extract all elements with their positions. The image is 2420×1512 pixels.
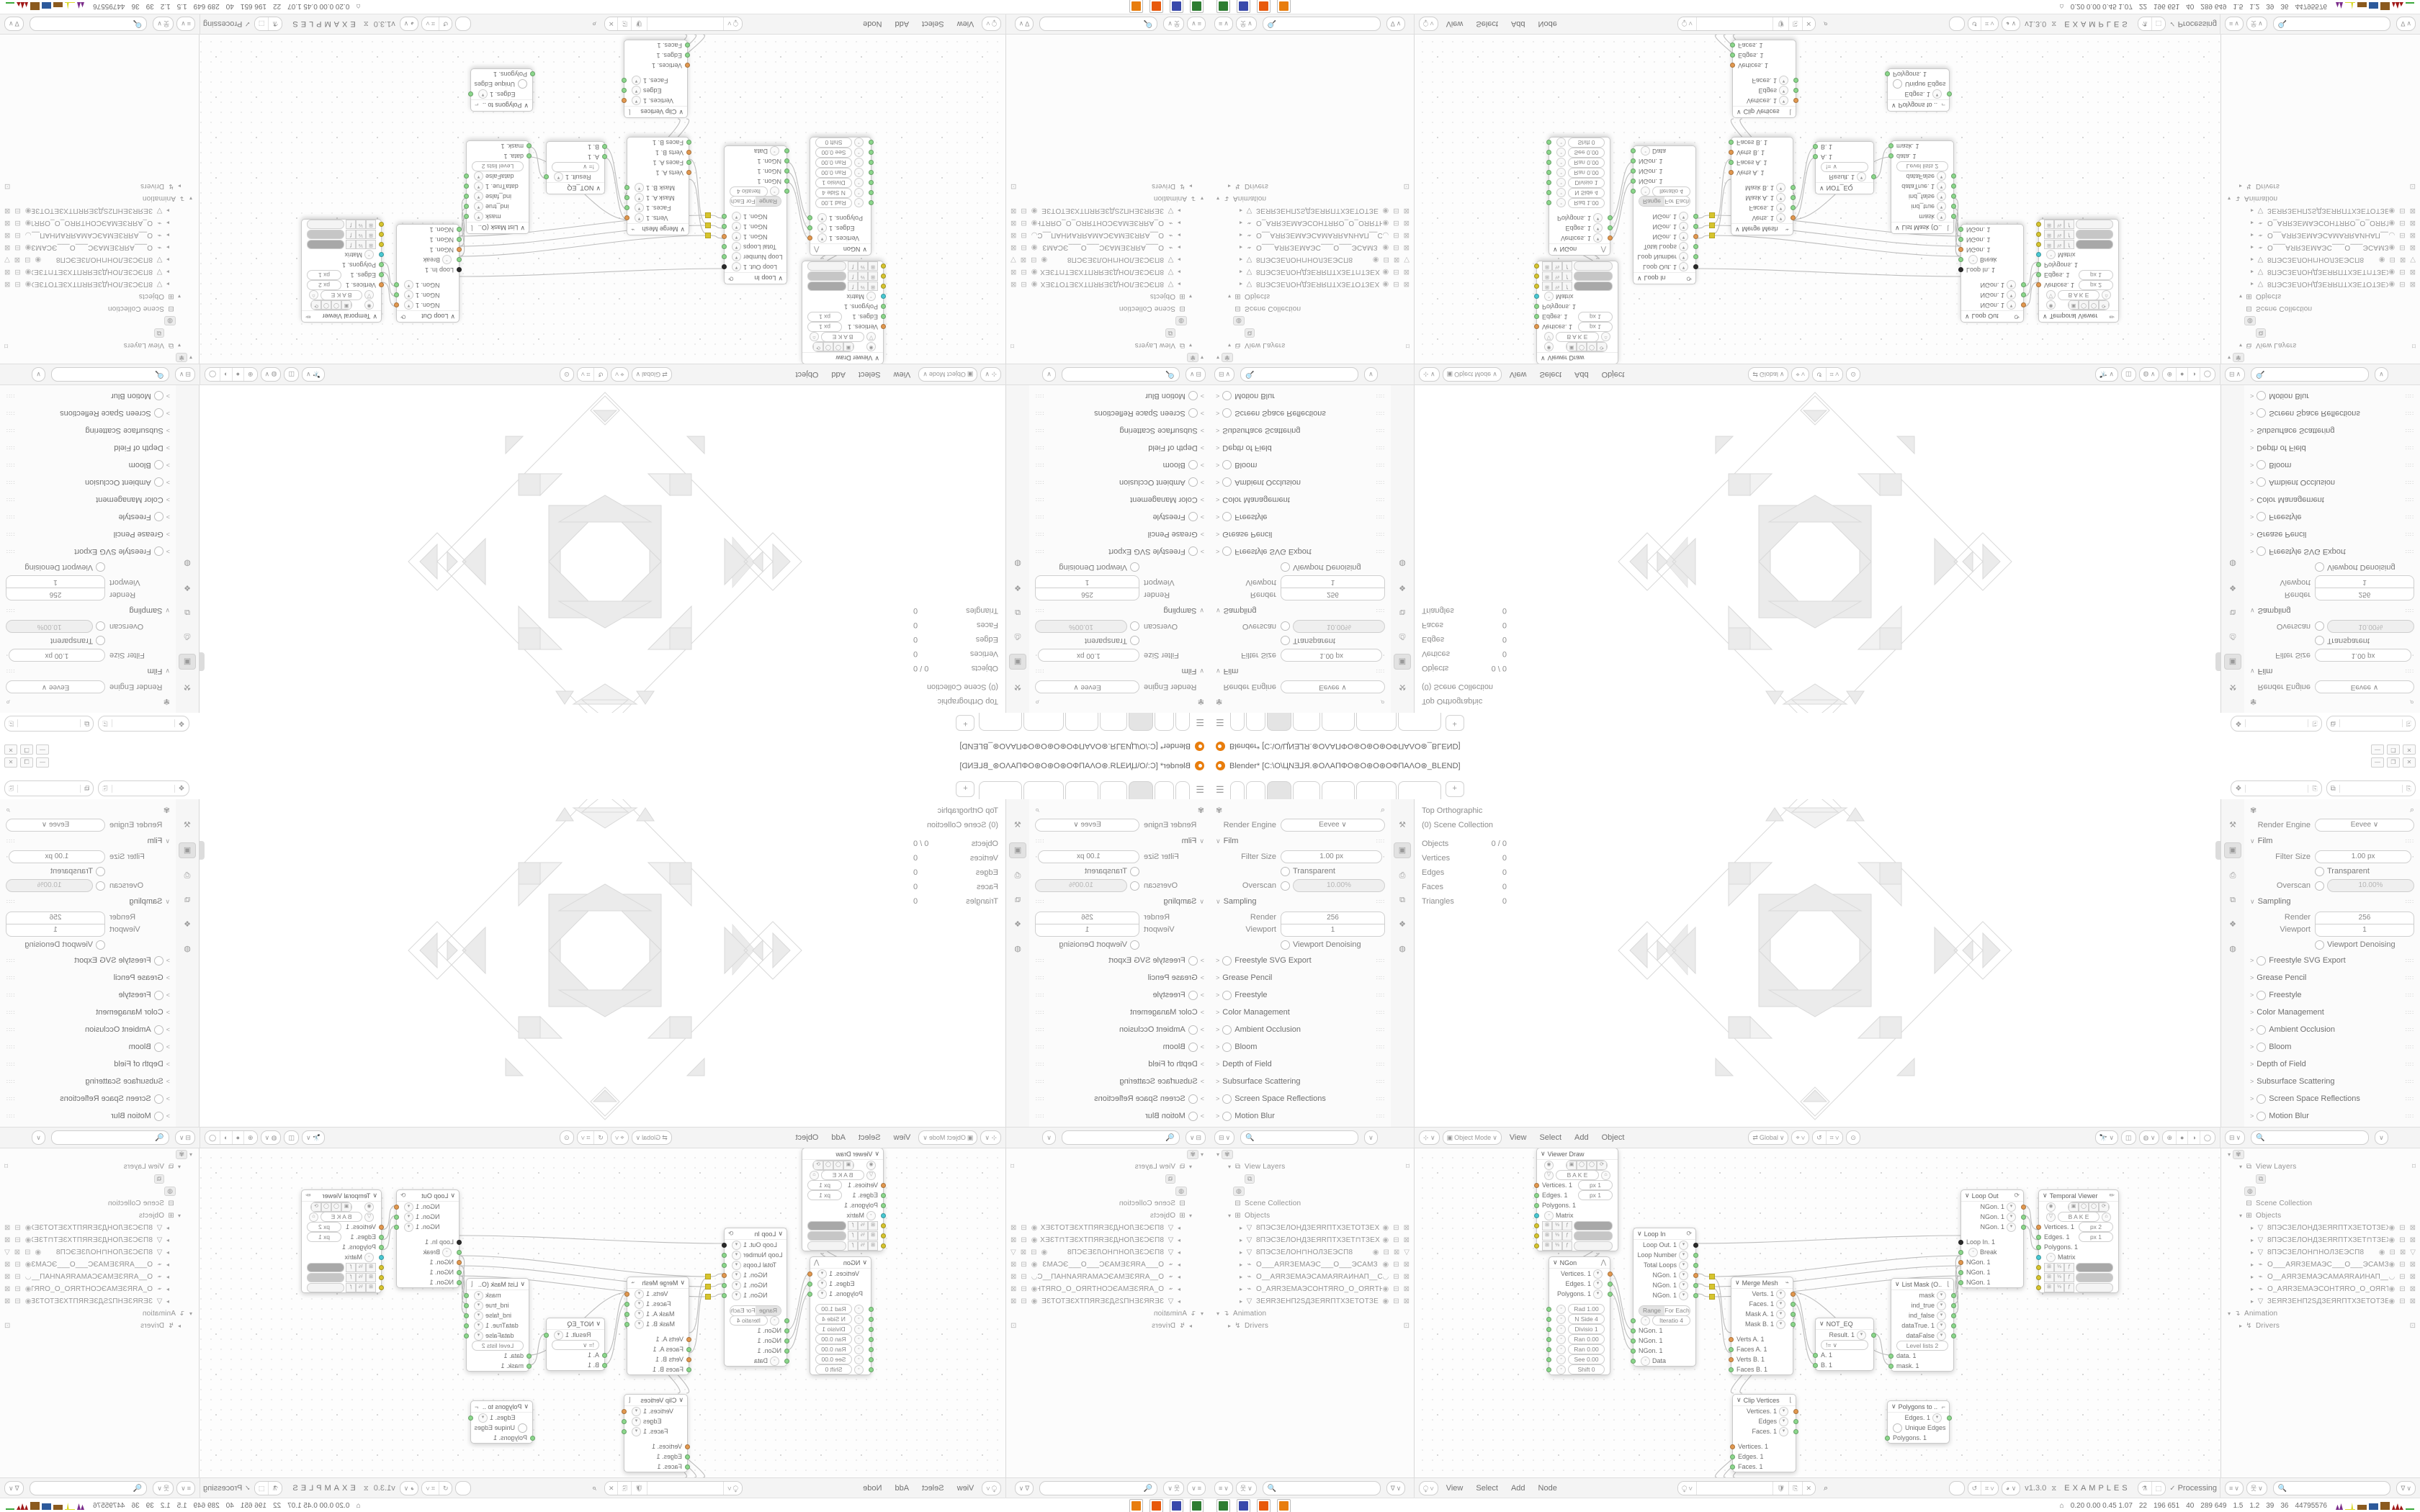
outliner-row-scene-collection[interactable]: ⊟Scene Collection xyxy=(0,302,199,315)
screen-space-reflections-row[interactable]: >Screen Space Reflections∷∷ xyxy=(1035,1090,1204,1107)
socket-green[interactable] xyxy=(464,1313,469,1318)
outliner-row-scene-collection[interactable]: ⊟Scene Collection xyxy=(0,1197,199,1210)
collapse-socket-chip[interactable]: ▾ xyxy=(1857,173,1866,182)
render-samples-field[interactable]: 256 xyxy=(1281,912,1385,924)
bake-button[interactable]: B A K E xyxy=(321,1212,362,1222)
node-polygons-to-edges[interactable]: ∨Polygons to ..⌐Edges. 1▾Unique EdgesPol… xyxy=(470,68,533,112)
editor-type-dropdown[interactable]: ⊹ ∨ xyxy=(980,367,1001,382)
swatch-btn-1[interactable]: ⅓ xyxy=(2054,240,2064,250)
swatch-btn-1[interactable]: ⅓ xyxy=(356,220,366,230)
socket-green[interactable] xyxy=(1546,150,1551,156)
matrix-icon[interactable]: ⌂ xyxy=(309,1212,318,1222)
value-field[interactable]: N Side 4 xyxy=(1568,188,1605,198)
workspace-tab[interactable] xyxy=(1322,781,1355,799)
properties-display-dropdown[interactable]: ⊟ ∨ xyxy=(175,367,195,382)
section-chevron-icon[interactable]: > xyxy=(166,410,170,417)
expand-arrow-icon[interactable]: ▸ xyxy=(1237,1237,1245,1243)
outliner-row--r-r-r-[interactable]: ▸⌁О_АЯRЗЕМАЭСОНТЯRО_О_ОЯRТН◉⊟⊠ xyxy=(0,217,199,229)
swatch-btn-1[interactable]: ⅓ xyxy=(858,1241,868,1251)
mesh-icon[interactable]: ▽ xyxy=(2046,291,2056,300)
socket-green[interactable] xyxy=(1730,1454,1735,1459)
shading-mode-2-button[interactable]: ◑ xyxy=(220,1131,231,1144)
render-samples-field[interactable]: 256 xyxy=(1035,588,1139,601)
checkbox-icon[interactable] xyxy=(1893,80,1902,89)
expand-arrow-icon[interactable]: ▾ xyxy=(1226,1164,1233,1170)
freestyle-svg-export-row[interactable]: >Freestyle SVG Export∷∷ xyxy=(6,952,170,969)
node-title[interactable]: ∨List Mask (O..⌊ xyxy=(1891,222,1953,233)
outliner-row-objects[interactable]: ▾⊞Objects xyxy=(2221,290,2420,302)
foreach-option[interactable]: For Each xyxy=(1664,1306,1690,1315)
socket-green[interactable] xyxy=(1534,315,1539,320)
collapse-socket-chip[interactable]: ▾ xyxy=(474,172,483,181)
foreach-option[interactable]: For Each xyxy=(730,197,756,207)
section-chevron-icon[interactable]: > xyxy=(166,974,170,981)
screen-space-reflections-row[interactable]: >Screen Space Reflections∷∷ xyxy=(1216,1090,1385,1107)
checkbox-icon[interactable] xyxy=(96,636,105,646)
node-loop-out[interactable]: ∨Loop Out⟳NGon. 1▾NGon. 1▾NGon. 1▾Loop I… xyxy=(396,224,460,323)
checkbox-icon[interactable] xyxy=(1188,1025,1198,1035)
motion-blur-row[interactable]: >Motion Blur∷∷ xyxy=(6,387,170,405)
visibility-dropdown[interactable]: 🔭 ∨ xyxy=(2095,1130,2118,1145)
collapse-socket-chip[interactable]: ▾ xyxy=(1779,1427,1788,1436)
node-viewer-draw-a[interactable]: ∨Viewer Draw◉▣◯◯⟳▽B A K E⌂Vertices. 1px … xyxy=(1536,261,1618,364)
menu-add[interactable]: Add xyxy=(895,1484,909,1493)
option-chip[interactable]: ◦ xyxy=(1556,1325,1566,1334)
maximize-button[interactable]: ❐ xyxy=(2387,757,2400,768)
checkbox-icon[interactable] xyxy=(154,1112,163,1121)
viewport-3d[interactable]: Top Orthographic (0) Scene Collection Ob… xyxy=(200,799,1005,1127)
outliner-row-drivers[interactable]: ▸↯Drivers⊡ xyxy=(1006,180,1210,192)
grease-pencil-row[interactable]: >Grease Pencil∷∷ xyxy=(1216,969,1385,986)
shading-mode-0-button[interactable]: ⊕ xyxy=(2163,368,2177,381)
viewlayer-icon[interactable]: ⧉ xyxy=(80,785,93,793)
menu-view[interactable]: View xyxy=(894,1133,911,1142)
eye-icon[interactable]: ◉ xyxy=(25,1297,32,1305)
menu-object[interactable]: Object xyxy=(1602,370,1625,379)
eye-icon[interactable]: ◉ xyxy=(1382,243,1389,251)
option-chip[interactable]: ◦ xyxy=(1556,1355,1566,1364)
option-chip[interactable]: ◦ xyxy=(364,251,374,260)
section-chevron-icon[interactable]: > xyxy=(166,462,170,469)
foreach-option[interactable]: For Each xyxy=(730,1306,756,1315)
section-chevron-icon[interactable]: > xyxy=(2250,410,2254,417)
properties-search-input[interactable]: 🔍 xyxy=(51,1130,169,1145)
expand-arrow-icon[interactable]: ▸ xyxy=(164,244,171,251)
option-chip[interactable]: ◦ xyxy=(1556,148,1566,158)
outliner-row[interactable]: ▾✾ xyxy=(2221,351,2420,364)
expand-arrow-icon[interactable]: ▸ xyxy=(164,269,171,275)
value-field[interactable]: See 0.00 xyxy=(815,1354,852,1364)
expand-arrow-icon[interactable]: ▾ xyxy=(176,1164,183,1170)
socket-green[interactable] xyxy=(1608,1292,1613,1297)
checkbox-icon[interactable] xyxy=(1130,881,1139,891)
color-swatch[interactable] xyxy=(1574,282,1613,292)
expand-arrow-icon[interactable]: ▾ xyxy=(2237,293,2244,300)
shading-sphere-dropdown[interactable]: ◕ ∨ xyxy=(400,1481,419,1495)
socket-green[interactable] xyxy=(722,255,727,260)
socket-orange[interactable] xyxy=(807,1272,812,1277)
outliner-display-dropdown[interactable]: ≡ ∨ xyxy=(2225,17,2244,31)
socket-orange[interactable] xyxy=(1729,171,1734,176)
screen-space-reflections-row[interactable]: >Screen Space Reflections∷∷ xyxy=(2250,1090,2414,1107)
node-title[interactable]: ∨NOT_EQ xyxy=(1816,1318,1873,1330)
swatch-btn-0[interactable]: ⊞ xyxy=(366,240,376,250)
eye-icon[interactable]: ◉ xyxy=(2388,1261,2395,1269)
socket-orange[interactable] xyxy=(457,1260,462,1265)
expand-arrow-icon[interactable]: ▾ xyxy=(2226,1310,2233,1317)
node-tree-selector[interactable]: ⧬ ∨ 🛡 ⎘ ✕ xyxy=(604,1481,743,1495)
px-field[interactable]: px 2 xyxy=(2079,280,2113,290)
grease-pencil-row[interactable]: >Grease Pencil∷∷ xyxy=(1035,969,1204,986)
checkbox-icon[interactable] xyxy=(96,622,105,631)
node-clip-vertices[interactable]: ∨Clip Vertices⌊Vertices. 1▾Edges▾Faces. … xyxy=(624,40,688,118)
workspace-tab[interactable] xyxy=(1293,713,1320,731)
level-lists-field[interactable]: Level lists 2 xyxy=(472,1341,524,1351)
render-disable-icon[interactable]: ⊠ xyxy=(4,1297,10,1305)
mode-dropdown[interactable]: ▣ Object Mode ∨ xyxy=(918,367,977,382)
socket-green[interactable] xyxy=(624,1312,629,1317)
screen-space-reflections-row[interactable]: >Screen Space Reflections∷∷ xyxy=(6,1090,170,1107)
checkbox-icon[interactable] xyxy=(2315,563,2324,572)
outliner-display-dropdown[interactable]: ≡ ∨ xyxy=(176,17,195,31)
eye-icon[interactable]: ◉ xyxy=(2388,1285,2395,1293)
freestyle-row[interactable]: >Freestyle∷∷ xyxy=(1216,508,1385,526)
checkbox-icon[interactable] xyxy=(1222,392,1232,401)
outliner-row-scene-collection[interactable]: ⊟Scene Collection xyxy=(2221,1197,2420,1210)
value-field[interactable]: Iteratio 4 xyxy=(1652,1315,1690,1326)
render-disable-icon[interactable]: ⊠ xyxy=(1021,256,1026,264)
viewlayer-icon[interactable]: ⧉ xyxy=(2327,720,2340,728)
eye-icon[interactable]: ◉ xyxy=(2388,1236,2395,1244)
outliner-search-input[interactable]: 🔍 xyxy=(1263,1481,1381,1495)
render-disable-icon[interactable]: ⊠ xyxy=(2410,1236,2416,1244)
checkbox-icon[interactable] xyxy=(1281,940,1290,950)
option-chip[interactable]: ◦ xyxy=(1641,147,1650,156)
viewport-denoising-row[interactable]: Viewport Denoising xyxy=(1035,937,1204,952)
swatch-btn-0[interactable]: ⊞ xyxy=(868,1231,878,1241)
outliner-row--r-[interactable]: ▸⌁О___АЯRЗЕМАЭС___О___ЭСАМЗ◉⊟⊠ xyxy=(0,241,199,253)
output-icon[interactable]: ⎙ xyxy=(1394,868,1410,883)
swatch-btn-2[interactable]: ƒ xyxy=(1562,262,1572,271)
viewlayer-name-field[interactable] xyxy=(2340,716,2402,731)
swatch-btn-2[interactable]: ƒ xyxy=(346,1263,356,1272)
collapse-chevron-icon[interactable]: ∨ xyxy=(520,224,525,232)
section-chevron-icon[interactable]: > xyxy=(166,1026,170,1033)
socket-green[interactable] xyxy=(1958,1270,1963,1275)
section-chevron-icon[interactable]: > xyxy=(166,496,170,503)
range-option[interactable]: Range xyxy=(756,197,781,207)
checkbox-icon[interactable] xyxy=(1130,940,1139,950)
snap-magnet-icon[interactable]: ⌖ ∨ xyxy=(1791,367,1809,382)
socket-green[interactable] xyxy=(686,1347,691,1352)
socket-green[interactable] xyxy=(722,1283,727,1288)
shading-mode-0-button[interactable]: ⊕ xyxy=(2163,1131,2177,1144)
collapse-socket-chip[interactable]: ▾ xyxy=(1593,1290,1603,1299)
socket-orange[interactable] xyxy=(686,1337,691,1342)
shading-mode-3-button[interactable]: ◯ xyxy=(205,1131,220,1144)
expand-arrow-icon[interactable]: ▸ xyxy=(1237,269,1245,275)
socket-green[interactable] xyxy=(1888,1364,1894,1369)
node-title[interactable]: ∨NGon⋀ xyxy=(1549,243,1610,255)
world-icon[interactable]: ◍ xyxy=(179,942,195,956)
outliner-row-scene-collection[interactable]: ⊟Scene Collection xyxy=(1210,1197,1414,1210)
collapse-socket-chip[interactable]: ▾ xyxy=(1937,1291,1946,1300)
foreach-option[interactable]: For Each xyxy=(1664,197,1690,207)
collapse-socket-chip[interactable]: ▾ xyxy=(474,182,483,192)
color-swatch[interactable] xyxy=(807,1231,846,1241)
collapse-socket-chip[interactable]: ▾ xyxy=(1776,1290,1785,1299)
socket-green[interactable] xyxy=(624,186,629,191)
swatch-btn-0[interactable]: ⊞ xyxy=(2044,1263,2054,1272)
value-field[interactable]: Rad 1.00 xyxy=(815,1304,852,1314)
outliner-row-scene-collection[interactable]: ⊟Scene Collection xyxy=(1210,302,1414,315)
option-chip[interactable]: ◦ xyxy=(1556,1315,1566,1324)
display-toggle-1[interactable]: ◯ xyxy=(331,301,341,310)
scene-icon[interactable]: ❖ xyxy=(2225,917,2241,932)
viewport-samples-field[interactable]: 1 xyxy=(2315,924,2414,937)
value-field[interactable]: Ran 0.00 xyxy=(815,168,852,178)
section-chevron-icon[interactable]: > xyxy=(1201,1078,1204,1085)
field-value[interactable]: 1.00 px xyxy=(1281,649,1382,662)
depth-of-field-row[interactable]: >Depth of Field∷∷ xyxy=(6,1056,170,1073)
overscan-row[interactable]: Overscan10.00% xyxy=(2250,878,2414,893)
node-title[interactable]: ∨Loop In⟳ xyxy=(1633,272,1695,284)
collapse-chevron-icon[interactable]: ∨ xyxy=(1735,225,1740,233)
minimize-button[interactable]: — xyxy=(2371,744,2384,755)
outliner-funnel-dropdown[interactable]: ∇ ∨ xyxy=(1386,1481,1406,1495)
eye-icon[interactable]: ◉ xyxy=(1031,280,1038,288)
expand-arrow-icon[interactable]: ▸ xyxy=(2249,244,2256,251)
swatch-btn-1[interactable]: ⅓ xyxy=(356,1283,366,1292)
workspace-tab[interactable] xyxy=(1398,713,1441,731)
properties-search-input[interactable]: 🔍 xyxy=(1062,1130,1180,1145)
expand-arrow-icon[interactable]: ▾ xyxy=(1187,293,1194,300)
collapse-socket-chip[interactable]: ▾ xyxy=(1776,1320,1785,1329)
eye-icon[interactable]: ◉ xyxy=(1031,207,1038,215)
render-disable-icon[interactable]: ⊠ xyxy=(1394,256,1399,264)
socket-orange[interactable] xyxy=(2036,1225,2041,1230)
screen-icon[interactable]: ⊟ xyxy=(2399,1224,2405,1232)
socket-green[interactable] xyxy=(1813,1353,1818,1358)
socket-green[interactable] xyxy=(722,225,727,230)
workspace-tab[interactable] xyxy=(979,781,1022,799)
firefox-app[interactable] xyxy=(1257,0,1270,14)
workspace-tab[interactable] xyxy=(1129,713,1153,731)
output-icon[interactable]: ⎙ xyxy=(179,629,195,644)
outliner-row-view-layers[interactable]: ▾⧉View Layers⌑ xyxy=(0,339,199,351)
render-disable-icon[interactable]: ⊠ xyxy=(2410,243,2416,251)
socket-black[interactable] xyxy=(1693,1243,1698,1248)
outliner-funnel-dropdown[interactable]: ∇ ∨ xyxy=(2396,1481,2416,1495)
outliner-row--r-s-r-[interactable]: ▸▽ЗЕЯRЗЕНП2SДЗЕЯRПТХЗЕТОТЗЕ◉⊟⊠ xyxy=(0,204,199,217)
tool-icon[interactable]: ⚒ xyxy=(1394,680,1410,694)
expand-arrow-icon[interactable]: ▸ xyxy=(1237,207,1245,214)
swatch-btn-2[interactable]: ƒ xyxy=(2064,240,2074,250)
node-title[interactable]: ∨NGon⋀ xyxy=(810,243,871,255)
swatch-btn-2[interactable]: ƒ xyxy=(848,1241,858,1251)
section-chevron-icon[interactable]: > xyxy=(1216,479,1219,486)
depth-of-field-row[interactable]: >Depth of Field∷∷ xyxy=(1035,1056,1204,1073)
eye-icon[interactable]: ◡ xyxy=(25,1273,32,1281)
value-field[interactable]: Ran 0.00 xyxy=(1568,1344,1605,1354)
expand-arrow-icon[interactable]: ▸ xyxy=(164,1225,171,1231)
collapse-socket-chip[interactable]: ▾ xyxy=(732,263,741,272)
collapse-socket-chip[interactable]: ▾ xyxy=(1937,1331,1946,1341)
toggle-chip-icon[interactable]: ⧉ xyxy=(1245,1174,1255,1184)
expand-arrow-icon[interactable]: ▸ xyxy=(164,1237,171,1243)
checkbox-icon[interactable] xyxy=(154,513,163,522)
outliner-row--r-[interactable]: ▸▽8ПЭСЗЕЛОНДЗЕЯRПТХЗЕТ⊓ТЗЕХ◉⊟⊠ xyxy=(1210,1234,1414,1246)
menu-select[interactable]: Select xyxy=(922,1484,944,1493)
overlays-dropdown[interactable]: ◍ ∨ xyxy=(2139,1130,2160,1145)
expand-arrow-icon[interactable]: ▾ xyxy=(187,1151,194,1158)
socket-cyan[interactable] xyxy=(1534,1213,1539,1218)
outliner-filter-person-dropdown[interactable]: 웃 ∨ xyxy=(2246,1481,2267,1495)
properties-search-input[interactable]: 🔍 xyxy=(51,367,169,382)
section-chevron-icon[interactable]: > xyxy=(1216,1112,1219,1120)
node-loop-out[interactable]: ∨Loop Out⟳NGon. 1▾NGon. 1▾NGon. 1▾Loop I… xyxy=(396,1189,460,1288)
copy-scene-icon[interactable]: ⎘ xyxy=(2308,785,2321,793)
sverchok-node-editor[interactable]: ∨Viewer Draw◉▣◯◯⟳▽B A K E⌂Vertices. 1px … xyxy=(1415,35,2220,364)
expand-arrow-icon[interactable]: ▸ xyxy=(2249,220,2256,226)
node-title[interactable]: ∨Polygons to ..⌐ xyxy=(1888,1401,1949,1413)
workspace-tab[interactable] xyxy=(1100,781,1127,799)
section-chevron-icon[interactable]: ∨ xyxy=(1216,837,1221,845)
expand-arrow-icon[interactable]: ▸ xyxy=(2249,1274,2256,1280)
socket-orange[interactable] xyxy=(1729,150,1734,156)
screen-icon[interactable]: ⊟ xyxy=(14,268,20,276)
tools-group[interactable]: ⚗⬚ xyxy=(254,17,283,31)
render-samples-field[interactable]: 256 xyxy=(6,588,105,601)
collapse-socket-chip[interactable]: ▾ xyxy=(635,1310,644,1319)
section-chevron-icon[interactable]: > xyxy=(2250,531,2254,538)
menu-select[interactable]: Select xyxy=(1539,1133,1561,1142)
section-chevron-icon[interactable]: > xyxy=(2250,1112,2254,1120)
pin-icon[interactable]: ⌕ xyxy=(6,806,10,815)
socket-green[interactable] xyxy=(1958,258,1963,263)
color-swatch[interactable] xyxy=(2076,1283,2113,1292)
option-chip[interactable]: ◦ xyxy=(854,1335,864,1344)
filter-size-row[interactable]: Filter Size1.00 px· xyxy=(6,648,170,662)
option-chip[interactable]: ◦ xyxy=(1641,1316,1650,1326)
bake-button[interactable]: B A K E xyxy=(821,1170,864,1180)
socket-green[interactable] xyxy=(624,1322,629,1327)
depth-of-field-row[interactable]: >Depth of Field∷∷ xyxy=(2250,1056,2414,1073)
grease-pencil-row[interactable]: >Grease Pencil∷∷ xyxy=(2250,969,2414,986)
node-list-mask[interactable]: ∨List Mask (O..⌊mask▾ind_true▾ind_false▾… xyxy=(466,140,529,234)
screen-icon[interactable]: ⊟ xyxy=(1021,1236,1026,1244)
transparent-row[interactable]: Transparent xyxy=(1216,864,1385,878)
field-value[interactable]: 10.00% xyxy=(6,620,93,633)
node-title[interactable]: ∨Merge Mesh⌁ xyxy=(627,1277,689,1289)
close-button[interactable]: ✕ xyxy=(4,744,17,755)
node-title[interactable]: ∨Temporal Viewer✏ xyxy=(302,1190,381,1202)
collapse-socket-chip[interactable]: ▾ xyxy=(1932,90,1942,99)
screen-icon[interactable]: ⊟ xyxy=(1021,243,1026,251)
socket-green[interactable] xyxy=(379,1245,384,1250)
properties-display-dropdown[interactable]: ⊟ ∨ xyxy=(2225,367,2245,382)
display-toggle-3[interactable]: ⟳ xyxy=(2099,301,2109,310)
socket-yellow[interactable] xyxy=(2036,1265,2041,1270)
node-title[interactable]: ∨Loop Out⟳ xyxy=(397,1190,459,1202)
render-disable-icon[interactable]: ⊠ xyxy=(1010,1285,1016,1293)
collapse-socket-chip[interactable]: ▾ xyxy=(817,1279,827,1289)
outliner-row--r-[interactable]: ▸⌁О___АЯRЗЕМАЭС___О___ЭСАМЗ◉⊟⊠ xyxy=(1006,241,1210,253)
workspace-tab[interactable] xyxy=(1023,781,1064,799)
render-icon[interactable]: ▣ xyxy=(2224,842,2241,858)
expand-arrow-icon[interactable]: ▾ xyxy=(176,293,183,300)
socket-green[interactable] xyxy=(1729,1367,1734,1372)
transparent-row[interactable]: Transparent xyxy=(6,864,170,878)
viewport-3d[interactable]: Top Orthographic (0) Scene Collection Ob… xyxy=(1415,799,2220,1127)
swatch-btn-1[interactable]: ⅓ xyxy=(2054,1273,2064,1282)
socket-green[interactable] xyxy=(1888,1354,1894,1359)
blender-app[interactable] xyxy=(1277,0,1291,14)
socket-green[interactable] xyxy=(1951,1313,1956,1318)
checkbox-icon[interactable] xyxy=(1130,636,1139,646)
screen-icon[interactable]: ⊟ xyxy=(1384,1248,1389,1256)
socket-green[interactable] xyxy=(379,1235,384,1240)
checkbox-icon[interactable] xyxy=(1188,1094,1198,1104)
outliner-row-view-layers[interactable]: ▾⧉View Layers⌑ xyxy=(1006,1161,1210,1173)
eye-icon[interactable]: ◉ xyxy=(25,280,32,288)
option-chip[interactable]: ◦ xyxy=(442,1248,452,1257)
socket-orange[interactable] xyxy=(2036,283,2041,288)
toggle-chip-icon[interactable]: ◍ xyxy=(2244,1187,2256,1196)
socket-orange[interactable] xyxy=(624,216,629,221)
editor-type-dropdown[interactable]: ⊹ ∨ xyxy=(1419,367,1440,382)
collapse-socket-chip[interactable]: ▾ xyxy=(1779,96,1788,106)
collapse-socket-chip[interactable]: ▾ xyxy=(732,243,741,252)
value-field[interactable]: Rad 1.00 xyxy=(1568,198,1605,208)
section-chevron-icon[interactable]: ∨ xyxy=(1216,898,1221,906)
checkbox-icon[interactable] xyxy=(154,409,163,418)
expand-arrow-icon[interactable]: ▸ xyxy=(164,256,171,263)
swatch-btn-0[interactable]: ⊞ xyxy=(868,282,878,292)
outliner-row--r-[interactable]: ▸▽8ПЭСЗЕЛОНДЗЕЯRПТХЗЕТ⊓ТЗЕХ◉⊟⊠ xyxy=(2221,266,2420,278)
screen-icon[interactable]: ⊟ xyxy=(2399,268,2405,276)
swatch-btn-2[interactable]: ƒ xyxy=(848,272,858,282)
overlays-dropdown[interactable]: ◍ ∨ xyxy=(261,1130,282,1145)
socket-orange[interactable] xyxy=(1534,325,1539,330)
color-swatch[interactable] xyxy=(2076,220,2113,230)
expand-arrow-icon[interactable]: ▸ xyxy=(1175,269,1183,275)
outliner-row--r-[interactable]: ▸⌁О___АЯRЗЕМАЭС___О___ЭСАМЗ◉⊟⊠ xyxy=(2221,1259,2420,1271)
screen-icon[interactable]: ⊟ xyxy=(1393,1297,1399,1305)
outliner-search-input[interactable]: 🔍 xyxy=(30,17,148,31)
shading-mode-1-button[interactable]: ● xyxy=(2177,368,2188,381)
outliner-row[interactable]: ▾✾ xyxy=(1006,351,1210,364)
checkbox-icon[interactable] xyxy=(1222,991,1232,1000)
checkbox-icon[interactable] xyxy=(2257,1112,2266,1121)
socket-orange[interactable] xyxy=(379,1225,384,1230)
outliner-row[interactable]: ⧉ xyxy=(0,1173,199,1185)
bloom-row[interactable]: >Bloom∷∷ xyxy=(1216,456,1385,474)
value-field[interactable]: Ran 0.00 xyxy=(815,1344,852,1354)
collapse-socket-chip[interactable]: ▾ xyxy=(635,1320,644,1329)
operator-dropdown[interactable]: != ∨ xyxy=(1821,1340,1868,1350)
screen-icon[interactable]: ⊟ xyxy=(14,1224,20,1232)
collapse-socket-chip[interactable]: ▾ xyxy=(817,224,827,233)
color-swatch[interactable] xyxy=(807,1241,846,1251)
socket-green[interactable] xyxy=(807,1292,812,1297)
collapse-socket-chip[interactable]: ▾ xyxy=(1776,1300,1785,1309)
swatch-btn-1[interactable]: ⅓ xyxy=(1552,272,1562,282)
collapse-socket-chip[interactable]: ▾ xyxy=(1937,1321,1946,1331)
socket-yellow[interactable] xyxy=(2036,1285,2041,1290)
socket-green[interactable] xyxy=(1729,161,1734,166)
socket-yellow[interactable] xyxy=(379,1265,384,1270)
